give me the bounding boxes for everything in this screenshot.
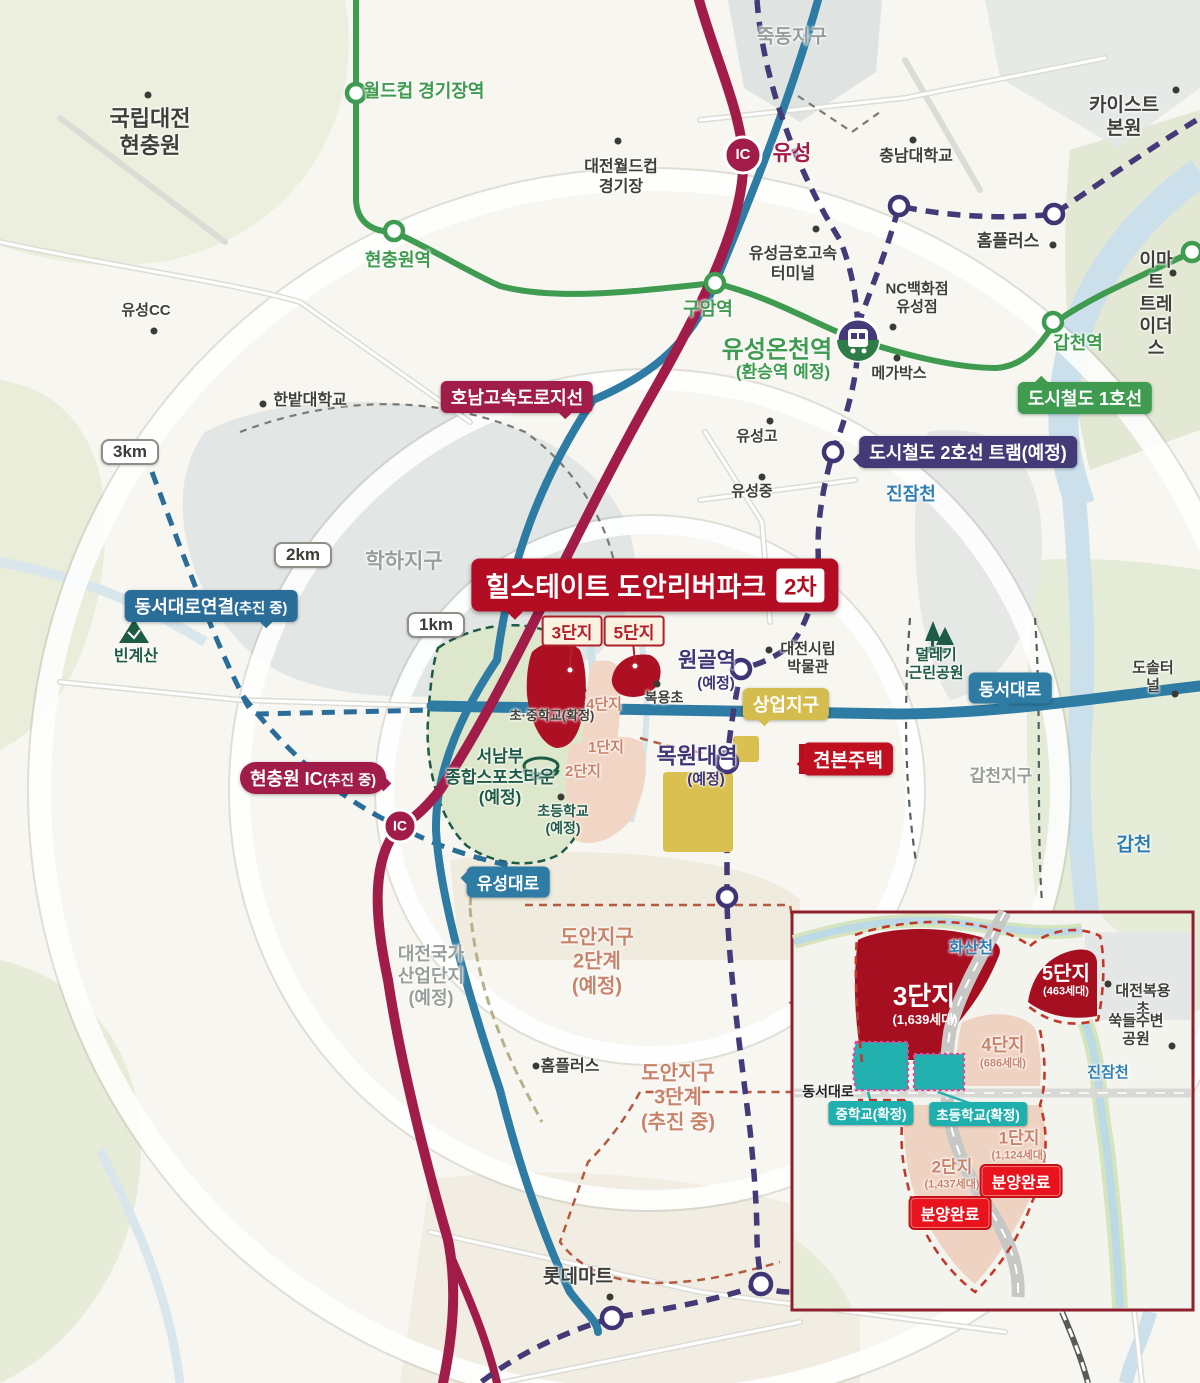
radius-1km: 1km <box>407 612 465 638</box>
station-hyeonchungwon: 현충원역 <box>365 250 431 272</box>
line1-badge-label: 도시철도 1호선 <box>1028 389 1142 409</box>
radius-3km: 3km <box>101 439 159 465</box>
mountain-icon <box>119 619 149 643</box>
inset-complex5-units: (463세대) <box>1043 985 1089 998</box>
poi-dot <box>759 474 766 481</box>
poi-yuseong-go: 유성고 <box>736 428 777 446</box>
inset-complex4: 4단지 <box>981 1035 1024 1057</box>
poi-dot <box>260 401 267 408</box>
inset-complex2: 2단지 <box>932 1158 973 1179</box>
poi-dot <box>1169 1043 1176 1050</box>
dongseo-daero-label: 동서대로 <box>979 681 1042 700</box>
inset-hwasancheon: 화산천 <box>949 939 993 959</box>
poi-bingyesan: 빈계산 <box>114 647 158 667</box>
poi-nc-dept: NC백화점 유성점 <box>885 281 948 318</box>
poi-dot <box>654 681 661 688</box>
poi-dot <box>890 324 897 331</box>
inset-complex5: 5단지 <box>1042 962 1090 986</box>
commercial-zone-badge: 상업지구 <box>743 688 829 720</box>
station-wongol-sub: (예정) <box>697 675 735 693</box>
district-jukdong: 죽동지구 <box>757 25 827 48</box>
poi-deollegi-park: 덜레기 근린공원 <box>908 647 963 684</box>
poi-dot <box>910 137 917 144</box>
poi-dot <box>607 1294 614 1301</box>
poi-museum: 대전시립 박물관 <box>780 641 835 678</box>
ic-circle-label: IC <box>393 817 407 834</box>
poi-dot <box>145 92 152 99</box>
poi-bokyongcho: 복용초 <box>645 689 684 706</box>
honam-badge: 호남고속도로지선 <box>441 381 593 413</box>
inset-soldout-2: 분양완료 <box>911 1198 990 1228</box>
transfer-station-icon <box>837 319 879 361</box>
station-yuseong-oncheon: 유성온천역 <box>722 335 832 364</box>
river-jinjamcheon: 진잠천 <box>886 484 936 506</box>
location-map: 국립대전 현충원 죽동지구 월드컵 경기장역 대전월드컵 경기장 IC 유성 카… <box>0 0 1200 1383</box>
district-hakha: 학하지구 <box>365 549 442 575</box>
dongseo-connect-badge: 동서대로연결(추진 중) <box>125 590 298 622</box>
poi-lottemart: 롯데마트 <box>543 1265 613 1288</box>
inset-jinjamcheon: 진잠천 <box>1087 1064 1128 1082</box>
model-house-label: 견본주택 <box>813 751 883 772</box>
station-mokwon-sub: (예정) <box>687 771 725 789</box>
inset-complex4-units: (686세대) <box>980 1057 1026 1070</box>
poi-school-confirmed: 초·중학교(확정) <box>510 708 595 724</box>
poi-dot <box>558 794 565 801</box>
dongseo-connect-label: 동서대로연결 <box>135 597 234 617</box>
poi-dot <box>1105 981 1112 988</box>
dongseo-daero-badge: 동서대로 <box>969 673 1052 704</box>
poi-megabox: 메가박스 <box>871 365 926 383</box>
poi-sports-town: 서남부 종합스포츠타운 (예정) <box>445 747 554 809</box>
station-yuseong-oncheon-sub: (환승역 예정) <box>736 363 830 384</box>
dongseo-connect-sub: (추진 중) <box>234 601 287 617</box>
inset-complex1: 1단지 <box>999 1129 1040 1150</box>
inset-complex2-units: (1,437세대) <box>924 1178 979 1191</box>
radius-2km: 2km <box>274 542 332 568</box>
station-mokwon: 목원대역 <box>657 744 738 771</box>
poi-dot <box>766 647 773 654</box>
poi-yuseong-cc: 유성CC <box>121 302 170 320</box>
tram-badge: 도시철도 2호선 트램(예정) <box>859 436 1077 468</box>
poi-hanbat: 한밭대학교 <box>273 391 347 411</box>
poi-dot <box>151 328 158 335</box>
poi-emart: 이마트 트레이더스 <box>1134 250 1178 360</box>
project-title: 힐스테이트 도안리버파크 <box>485 566 766 605</box>
poi-dot <box>767 418 774 425</box>
hyeonchungwon-ic-sub: (추진 중) <box>323 773 376 789</box>
hyeonchungwon-ic-badge: 현충원 IC(추진 중) <box>240 762 386 794</box>
poi-dot <box>533 1063 540 1070</box>
poi-homeplus-bottom: 홈플러스 <box>541 1057 600 1077</box>
district-industrial: 대전국가 산업단지 (예정) <box>398 944 464 1010</box>
inset-dongseo-daero: 동서대로 <box>802 1083 854 1100</box>
poi-dot <box>1050 242 1057 249</box>
tram-badge-label: 도시철도 2호선 트램(예정) <box>869 443 1067 463</box>
river-gapcheon: 갑천 <box>1117 833 1152 856</box>
poi-homeplus-top: 홈플러스 <box>977 232 1040 253</box>
poi-kaist: 카이스트 본원 <box>1086 94 1162 140</box>
poi-worldcup-stadium: 대전월드컵 경기장 <box>584 157 658 196</box>
inset-middle-school-badge: 중학교(확정) <box>828 1101 913 1125</box>
poi-cnu: 충남대학교 <box>879 147 953 167</box>
poi-terminal: 유성금호고속 터미널 <box>749 244 837 283</box>
complex4-label: 4단지 <box>586 696 622 714</box>
inset-ssukdeul-park: 쑥들수변공원 <box>1104 1013 1168 1050</box>
district-doan2: 도안지구 2단계 (예정) <box>560 925 634 998</box>
yuseong-daero-badge: 유성대로 <box>467 867 550 898</box>
complex2-label: 2단지 <box>565 763 601 781</box>
poi-dot <box>615 138 622 145</box>
yuseong-daero-label: 유성대로 <box>477 875 540 894</box>
inset-complex3: 3단지 <box>893 981 955 1013</box>
poi-dot <box>1173 87 1180 94</box>
poi-dot <box>813 226 820 233</box>
station-guam: 구암역 <box>683 299 733 321</box>
inset-soldout-1: 분양완료 <box>982 1166 1061 1196</box>
poi-dot <box>1172 691 1179 698</box>
poi-dot <box>894 355 901 362</box>
district-doan3: 도안지구 3단계 (추진 중) <box>641 1061 715 1134</box>
inset-complex3-units: (1,639세대) <box>892 1012 957 1028</box>
station-wongol: 원골역 <box>678 648 736 674</box>
complex1-label: 1단지 <box>588 739 624 757</box>
model-house-badge: 견본주택 <box>803 743 893 776</box>
station-gapcheon: 갑천역 <box>1053 333 1103 355</box>
railway <box>1062 1312 1088 1383</box>
ic-yuseong-label: IC <box>736 146 751 164</box>
commercial-zone-label: 상업지구 <box>753 695 819 715</box>
ic-yuseong-name: 유성 <box>773 141 812 167</box>
poi-dot <box>1170 270 1177 277</box>
inset-complex1-units: (1,124세대) <box>991 1149 1046 1162</box>
station-worldcup: 월드컵 경기장역 <box>364 81 485 103</box>
line1-badge: 도시철도 1호선 <box>1018 382 1152 414</box>
complex5-tag: 5단지 <box>604 616 665 647</box>
poi-yuseong-jung: 유성중 <box>731 483 772 501</box>
district-gapcheon: 갑천지구 <box>970 767 1033 788</box>
project-phase-badge: 2차 <box>776 568 824 602</box>
complex3-tag: 3단지 <box>542 616 603 647</box>
poi-dosol-tunnel: 도솔터널 <box>1130 660 1177 697</box>
inset-elem-school-badge: 초등학교(확정) <box>929 1102 1027 1126</box>
hyeonchungwon-ic-label: 현충원 IC <box>250 769 323 789</box>
honam-badge-label: 호남고속도로지선 <box>451 388 583 408</box>
poi-elementary-planned: 초등학교 (예정) <box>537 803 589 837</box>
poi-national-cemetery: 국립대전 현충원 <box>110 106 191 160</box>
project-title-banner: 힐스테이트 도안리버파크 2차 <box>471 559 838 612</box>
